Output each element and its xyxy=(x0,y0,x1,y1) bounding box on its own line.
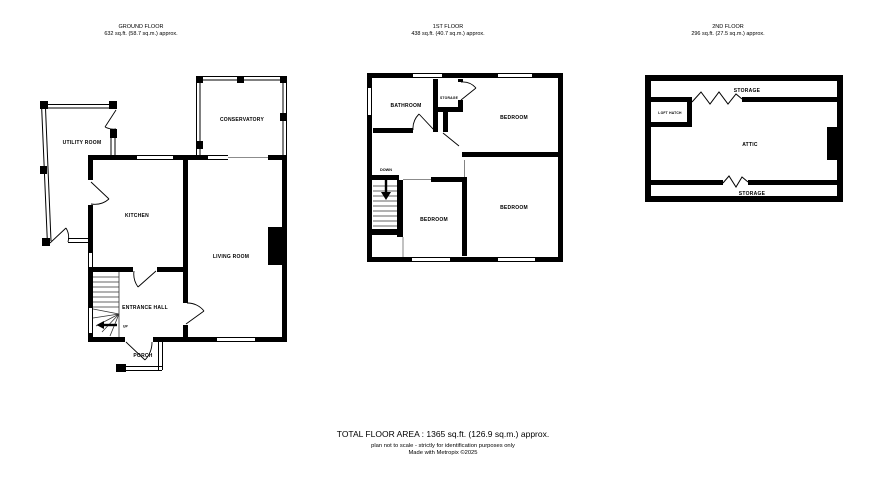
floor-title-second: 2ND FLOOR xyxy=(712,24,744,30)
stairs-up-label: UP xyxy=(123,325,128,329)
room-label-living-room: LIVING ROOM xyxy=(213,254,249,260)
footer: TOTAL FLOOR AREA : 1365 sq.ft. (126.9 sq… xyxy=(337,429,549,456)
floor-area-ground: 632 sq.ft. (58.7 sq.m.) approx. xyxy=(104,31,178,37)
ground-floor-windows xyxy=(89,156,256,342)
second-floor-walls xyxy=(645,75,843,202)
room-label-utility-room: UTILITY ROOM xyxy=(63,140,102,146)
ground-floor-doors xyxy=(50,110,204,360)
first-floor-opening-lines xyxy=(403,160,465,257)
total-floor-area-text: TOTAL FLOOR AREA : 1365 sq.ft. (126.9 sq… xyxy=(337,429,549,439)
second-floor-plan: 2ND FLOOR 296 sq.ft. (27.5 sq.m.) approx… xyxy=(645,24,843,202)
sloped-ceiling-break-bottom xyxy=(723,176,748,187)
first-floor-plan: 1ST FLOOR 438 sq.ft. (40.7 sq.m.) approx… xyxy=(367,24,563,262)
floor-area-second: 296 sq.ft. (27.5 sq.m.) approx. xyxy=(691,31,765,37)
room-label-bedroom-1: BEDROOM xyxy=(500,115,528,121)
room-label-storage-top: STORAGE xyxy=(734,88,761,94)
utility-room-glazing xyxy=(42,104,116,245)
room-label-kitchen: KITCHEN xyxy=(125,213,149,219)
first-floor-walls xyxy=(367,73,563,262)
room-label-attic: ATTIC xyxy=(742,142,758,148)
floorplan-page: GROUND FLOOR 632 sq.ft. (58.7 sq.m.) app… xyxy=(0,0,886,484)
stairs-down-label: DOWN xyxy=(380,168,392,172)
floor-area-first: 438 sq.ft. (40.7 sq.m.) approx. xyxy=(411,31,485,37)
room-label-bathroom: BATHROOM xyxy=(390,103,421,109)
room-label-conservatory: CONSERVATORY xyxy=(220,117,265,123)
room-label-storage-bottom: STORAGE xyxy=(739,191,766,197)
floorplan-canvas: GROUND FLOOR 632 sq.ft. (58.7 sq.m.) app… xyxy=(0,0,886,484)
chimney-breast-attic xyxy=(827,127,843,160)
credit-text: Made with Metropix ©2025 xyxy=(408,449,477,456)
floor-title-ground: GROUND FLOOR xyxy=(119,24,164,30)
conservatory-glazing xyxy=(196,76,287,155)
room-label-loft-hatch: LOFT HATCH xyxy=(658,111,682,115)
ground-floor-plan: GROUND FLOOR 632 sq.ft. (58.7 sq.m.) app… xyxy=(40,24,287,372)
room-label-bedroom-2: BEDROOM xyxy=(420,217,448,223)
room-label-porch: PORCH xyxy=(133,353,152,359)
chimney-breast-ground xyxy=(268,227,282,265)
room-label-bedroom-3: BEDROOM xyxy=(500,205,528,211)
disclaimer-text: plan not to scale - strictly for identif… xyxy=(371,443,515,449)
floor-title-first: 1ST FLOOR xyxy=(433,24,463,30)
room-label-entrance-hall: ENTRANCE HALL xyxy=(122,305,168,311)
room-label-storage-small: STORAGE xyxy=(440,96,459,100)
